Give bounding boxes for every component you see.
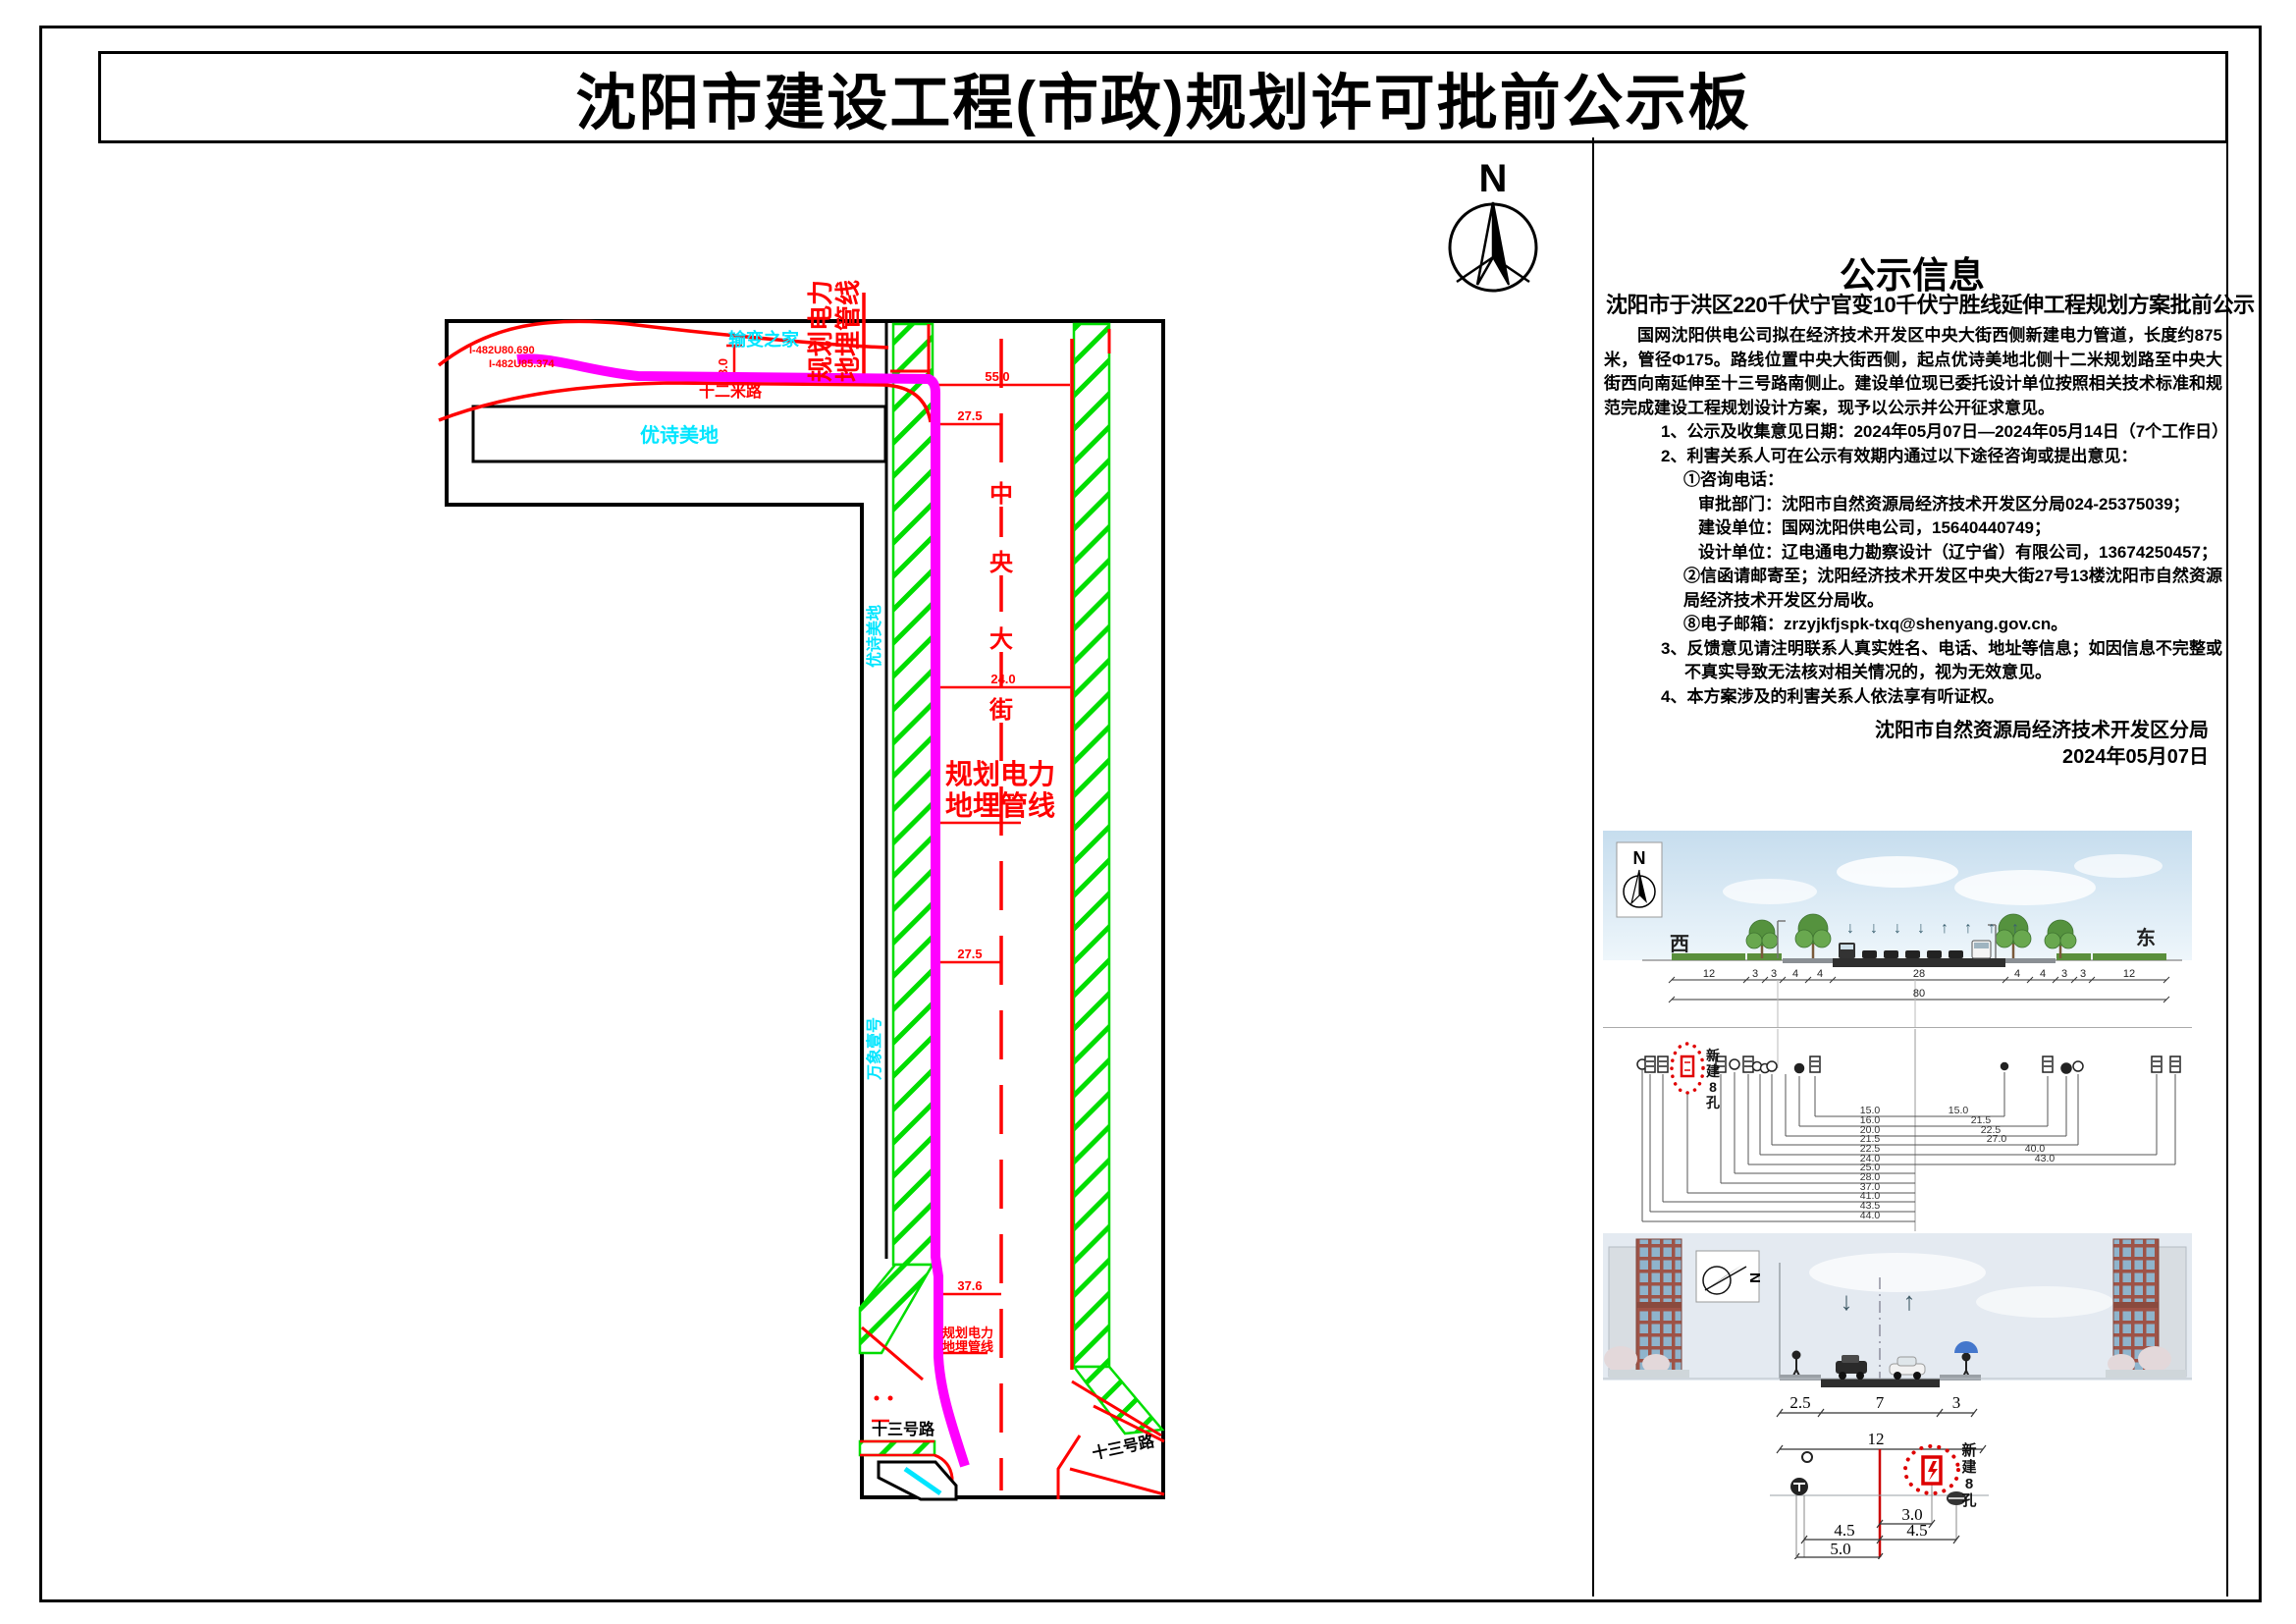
svg-text:↓: ↓ bbox=[1917, 920, 1925, 937]
dim-27-5-b: 27.5 bbox=[957, 947, 982, 961]
svg-text:12: 12 bbox=[2123, 968, 2135, 980]
notice-item-4: 4、本方案涉及的利害关系人依法享有听证权。 bbox=[1604, 685, 2222, 710]
notice-subtitle: 沈阳市于洪区220千伏宁官变10千伏宁胜线延伸工程规划方案批前公示 bbox=[1606, 288, 2222, 319]
svg-text:中: 中 bbox=[989, 481, 1013, 508]
notice-phone-builder: 建设单位：国网沈阳供电公司，15640440749； bbox=[1604, 516, 2222, 541]
estate-rect-label: 优诗美地 bbox=[640, 423, 719, 447]
dim-24-0: 24.0 bbox=[990, 672, 1015, 686]
notice-body: 国网沈阳供电公司拟在经济技术开发区中央大街西侧新建电力管道，长度约875米，管径… bbox=[1604, 324, 2222, 709]
fan-labels-right: 15.0 21.5 22.5 27.0 40.0 43.0 bbox=[1949, 1105, 2056, 1164]
svg-text:↓: ↓ bbox=[1846, 920, 1854, 937]
east-label: 东 bbox=[2136, 926, 2156, 949]
svg-text:建: 建 bbox=[1706, 1063, 1720, 1079]
svg-text:新: 新 bbox=[1961, 1441, 1976, 1459]
sidewalk-left bbox=[1780, 1375, 1821, 1380]
utility-layout-svg: 新 建 8 孔 15.0 16.0 bbox=[1603, 1029, 2192, 1231]
north-label: N bbox=[1479, 157, 1508, 200]
road-12m-label: 十二米路 bbox=[699, 382, 763, 401]
utility-layout-diagram: 新 建 8 孔 15.0 16.0 bbox=[1603, 1029, 2192, 1231]
svg-text:街: 街 bbox=[988, 696, 1013, 724]
street-section-diagram: N ↓ ↑ bbox=[1603, 1233, 2192, 1559]
svg-text:44.0: 44.0 bbox=[1860, 1210, 1881, 1221]
notice-item-3: 3、反馈意见请注明联系人真实姓名、电话、地址等信息；如因信息不完整或不真实导致无… bbox=[1604, 637, 2222, 685]
dimension-labels: 12 3 3 4 4 28 4 4 3 3 12 80 bbox=[1703, 968, 2135, 1000]
west-label: 西 bbox=[1670, 934, 1689, 955]
sidewalk-east bbox=[2005, 958, 2056, 963]
svg-text:↑: ↑ bbox=[1941, 920, 1949, 937]
svg-text:43.0: 43.0 bbox=[2035, 1153, 2056, 1164]
svg-text:3: 3 bbox=[1752, 968, 1758, 980]
coord-label-b: I-482U85.374 bbox=[489, 358, 556, 370]
carriageway bbox=[1833, 958, 2005, 967]
sky bbox=[1603, 831, 2192, 960]
fan-labels-left: 15.0 16.0 20.0 21.5 22.5 24.0 25.0 28.0 … bbox=[1860, 1105, 1881, 1221]
road-lines bbox=[439, 293, 1164, 1499]
svg-text:12: 12 bbox=[1703, 968, 1715, 980]
svg-text:规划电力: 规划电力 bbox=[806, 280, 835, 382]
road-13-right-label: 十三号路 bbox=[1091, 1432, 1157, 1463]
street-compass: N bbox=[1696, 1251, 1763, 1302]
notice-date: 2024年05月07日 bbox=[1604, 740, 2209, 769]
new-duct-label: 新 建 8 孔 bbox=[1961, 1441, 1977, 1509]
dim-4-5-b: 4.5 bbox=[1906, 1521, 1927, 1540]
svg-text:4: 4 bbox=[1817, 968, 1823, 980]
dimension-chain bbox=[1669, 977, 2169, 1027]
svg-text:规划电力: 规划电力 bbox=[945, 759, 1055, 789]
dim-37-6: 37.6 bbox=[957, 1278, 982, 1293]
svg-text:央: 央 bbox=[989, 550, 1014, 576]
route-label-mid: 规划电力 地埋管线 bbox=[945, 759, 1055, 821]
plan-outline bbox=[447, 321, 1163, 1497]
north-label: N bbox=[1746, 1272, 1763, 1283]
sidewalk-right bbox=[1940, 1375, 1981, 1380]
notice-signature: 沈阳市自然资源局经济技术开发区分局 bbox=[1604, 714, 2209, 742]
svg-text:↑: ↑ bbox=[2011, 920, 2019, 937]
estate-top-label: 输变之家 bbox=[728, 329, 800, 350]
notice-channel-email: ⑧电子邮箱：zrzyjkfjspk-txq@shenyang.gov.cn。 bbox=[1604, 613, 2222, 637]
svg-text:孔: 孔 bbox=[1706, 1095, 1720, 1110]
dims-lower bbox=[1793, 1495, 1959, 1559]
svg-text:28: 28 bbox=[1913, 968, 1925, 980]
cross-section-svg: N 西 东 bbox=[1603, 831, 2192, 1027]
notice-item-1: 1、公示及收集意见日期：2024年05月07日—2024年05月14日（7个工作… bbox=[1604, 420, 2222, 445]
svg-text:3: 3 bbox=[2080, 968, 2086, 980]
svg-text:地埋管线: 地埋管线 bbox=[833, 280, 863, 382]
dim-5-0: 5.0 bbox=[1830, 1540, 1850, 1558]
side-estate-upper: 优诗美地 bbox=[865, 605, 883, 668]
dimension-fan bbox=[1642, 1070, 2175, 1221]
svg-text:4: 4 bbox=[1792, 968, 1798, 980]
svg-text:↓: ↓ bbox=[1894, 920, 1901, 937]
svg-text:15.0: 15.0 bbox=[1949, 1105, 1969, 1116]
svg-text:地埋管线: 地埋管线 bbox=[942, 1339, 993, 1354]
sidewalk-west bbox=[1783, 958, 1833, 963]
street-section-svg: N ↓ ↑ bbox=[1603, 1233, 2192, 1559]
section-compass: N bbox=[1617, 842, 1662, 917]
corner-marking bbox=[879, 1462, 956, 1499]
road-13-left-label: 十三号路 bbox=[872, 1420, 935, 1438]
notice-phone-designer: 设计单位：辽电通电力勘察设计（辽宁省）有限公司，13674250457； bbox=[1604, 541, 2222, 566]
dim-27-5-a: 27.5 bbox=[957, 408, 982, 423]
svg-text:8: 8 bbox=[1965, 1476, 1973, 1492]
svg-text:4: 4 bbox=[2014, 968, 2020, 980]
side-estate-lower: 万象壹号 bbox=[865, 1017, 883, 1081]
new-duct-label: 新 建 8 孔 bbox=[1706, 1048, 1720, 1110]
notice-item-2: 2、利害关系人可在公示有效期内通过以下途径咨询或提出意见： bbox=[1604, 445, 2222, 469]
north-label: N bbox=[1633, 848, 1646, 868]
arrow-down: ↓ bbox=[1841, 1286, 1853, 1316]
svg-text:孔: 孔 bbox=[1961, 1492, 1976, 1509]
notice-phone-approval: 审批部门：沈阳市自然资源局经济技术开发区分局024-25375039； bbox=[1604, 493, 2222, 517]
plan-dimension-labels: 3.0 55.0 27.5 24.0 27.5 37.6 bbox=[716, 358, 1016, 1293]
svg-text:↑: ↑ bbox=[1964, 920, 1972, 937]
svg-text:规划电力: 规划电力 bbox=[942, 1326, 993, 1340]
svg-text:3: 3 bbox=[1771, 968, 1777, 980]
svg-text:新: 新 bbox=[1706, 1048, 1720, 1063]
svg-text:4: 4 bbox=[2040, 968, 2046, 980]
total-width-label: 80 bbox=[1913, 988, 1925, 1000]
svg-text:大: 大 bbox=[989, 626, 1013, 653]
svg-text:27.0: 27.0 bbox=[1987, 1133, 2007, 1145]
route-label-top: 规划电力 地埋管线 bbox=[806, 280, 863, 382]
svg-text:地埋管线: 地埋管线 bbox=[945, 789, 1055, 821]
dim-4-5-a: 4.5 bbox=[1834, 1521, 1854, 1540]
north-compass: N bbox=[1450, 157, 1536, 291]
dim-3: 3 bbox=[1952, 1393, 1961, 1412]
notice-channel-phone: ①咨询电话： bbox=[1604, 468, 2222, 493]
notice-channel-mail: ②信函请邮寄至；沈阳经济技术开发区中央大街27号13楼沈阳市自然资源局经济技术开… bbox=[1604, 565, 2222, 613]
notice-intro: 国网沈阳供电公司拟在经济技术开发区中央大街西侧新建电力管道，长度约875米，管径… bbox=[1604, 324, 2222, 420]
notice-board-page: 沈阳市建设工程(市政)规划许可批前公示板 N bbox=[0, 0, 2296, 1624]
dim-2-5: 2.5 bbox=[1789, 1393, 1810, 1412]
svg-text:↓: ↓ bbox=[1870, 920, 1878, 937]
svg-text:8: 8 bbox=[1709, 1079, 1717, 1095]
cross-section-diagram: N 西 东 bbox=[1603, 831, 2192, 1028]
dim-55-0: 55.0 bbox=[985, 369, 1009, 384]
new-duct-symbol bbox=[1672, 1044, 1703, 1093]
svg-text:建: 建 bbox=[1961, 1458, 1977, 1476]
svg-text:3: 3 bbox=[2061, 968, 2067, 980]
arrow-up: ↑ bbox=[1903, 1286, 1916, 1316]
carriageway bbox=[1821, 1379, 1940, 1387]
dim-7: 7 bbox=[1876, 1393, 1885, 1412]
coord-label-a: I-482U80.690 bbox=[469, 345, 535, 356]
svg-text:↑: ↑ bbox=[1988, 920, 1996, 937]
route-label-bottom: 规划电力 地埋管线 bbox=[942, 1326, 993, 1354]
dim-12: 12 bbox=[1868, 1430, 1885, 1448]
